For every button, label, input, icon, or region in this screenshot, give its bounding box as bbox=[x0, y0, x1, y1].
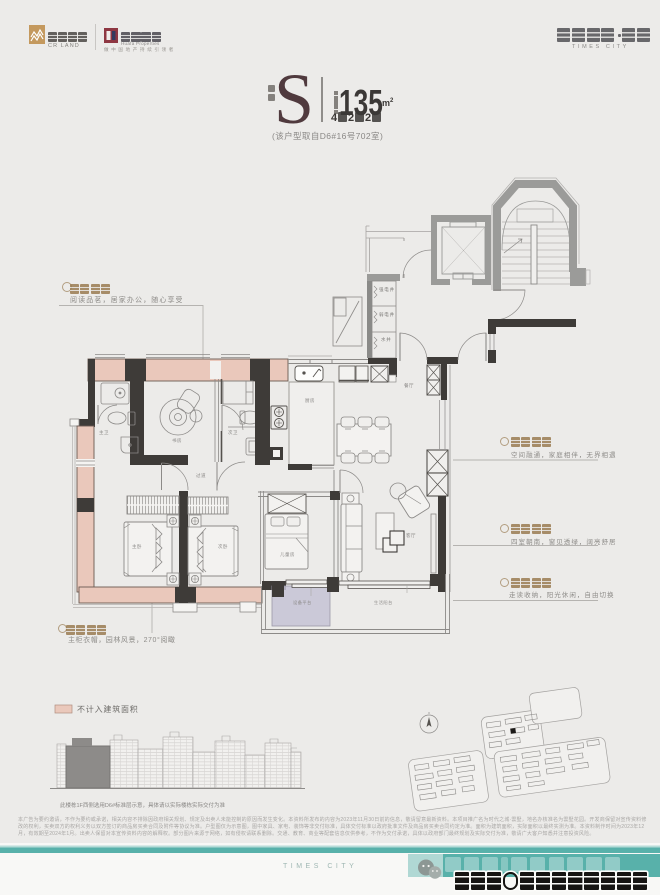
svg-text:书房: 书房 bbox=[172, 437, 182, 444]
svg-text:设备平台: 设备平台 bbox=[293, 599, 312, 606]
svg-text:儿童房: 儿童房 bbox=[280, 551, 295, 558]
svg-text:厨房: 厨房 bbox=[305, 397, 315, 404]
svg-text:主卫: 主卫 bbox=[99, 429, 109, 435]
svg-text:强电井: 强电井 bbox=[379, 286, 395, 293]
svg-text:水井: 水井 bbox=[381, 336, 392, 343]
svg-text:客厅: 客厅 bbox=[406, 532, 416, 539]
svg-text:餐厅: 餐厅 bbox=[404, 382, 414, 389]
svg-text:生活阳台: 生活阳台 bbox=[374, 599, 393, 606]
svg-text:次卫: 次卫 bbox=[228, 429, 238, 436]
svg-text:过道: 过道 bbox=[196, 472, 206, 479]
svg-text:次卧: 次卧 bbox=[218, 543, 228, 550]
svg-text:主卧: 主卧 bbox=[132, 543, 142, 550]
svg-text:弱电井: 弱电井 bbox=[379, 311, 395, 318]
